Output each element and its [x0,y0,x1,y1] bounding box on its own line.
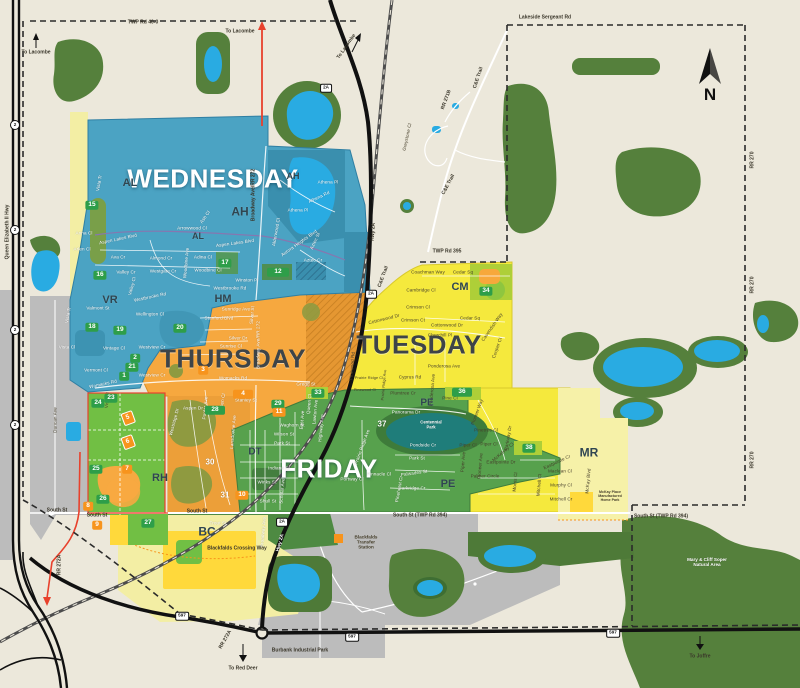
map-canvas [0,0,800,688]
map-root: WEDNESDAY THURSDAY TUESDAY FRIDAY N Vist… [0,0,800,688]
transfer-station-icon [334,534,343,543]
